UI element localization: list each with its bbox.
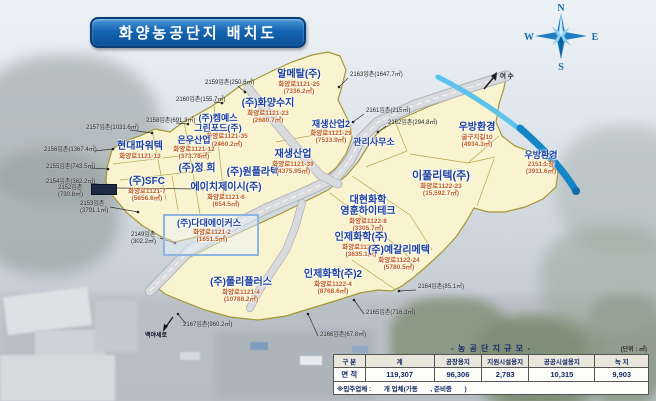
compass-w: W [524,32,534,43]
compass-rose: N S W E [524,3,599,73]
stats-note: ※입주업체 : 개 업체(가동 , 준비중 ) [333,382,649,395]
compass-e: E [592,32,599,43]
stream-end [572,187,580,195]
stats-title: - 농 공 단 지 규 모 - [333,343,649,354]
stats-header-cell: 공공시설용지 [529,355,595,368]
stats-header-cell: 계 [365,355,434,368]
stats-value-cell: 96,306 [434,368,481,382]
compass-n: N [557,3,565,14]
stats-header-cell: 지원시설용지 [482,355,529,368]
stats-value-cell: 9,903 [595,368,649,382]
screenshot-root: N S W E 알메탈(주)화양로1121-25(7336.2㎡)(주)화양수지… [0,0,656,401]
stats-value-cell: 10,315 [529,368,595,382]
stats-header: - 농 공 단 지 규 모 - (단위 : ㎡) [333,343,649,354]
compass-s: S [558,62,564,73]
stats-value-cell: 119,307 [365,368,434,382]
stats-header-row: 구 분 계 공장용지 지원시설용지 공공시설용지 녹 지 [334,355,649,368]
site-map-canvas: N S W E [0,0,656,401]
stats-header-cell: 공장용지 [434,355,481,368]
stats-value-cell: 2,783 [482,368,529,382]
exit-destination-label: 여 수 [500,70,514,80]
site-stats: - 농 공 단 지 규 모 - (단위 : ㎡) 구 분 계 공장용지 지원시설… [333,343,649,395]
stats-header-cell: 녹 지 [595,355,649,368]
stats-value-row: 면 적 119,307 96,306 2,783 10,315 9,903 [334,368,649,382]
map-title: 화양농공단지 배치도 [90,17,306,48]
stats-table: 구 분 계 공장용지 지원시설용지 공공시설용지 녹 지 면 적 119,307… [333,354,649,382]
stats-row-label: 면 적 [334,368,366,382]
parcel-highlight-box [163,214,259,256]
road-name-label: 백야세로 [145,330,167,339]
stats-header-cell: 구 분 [334,355,366,368]
stats-unit: (단위 : ㎡) [621,344,647,353]
